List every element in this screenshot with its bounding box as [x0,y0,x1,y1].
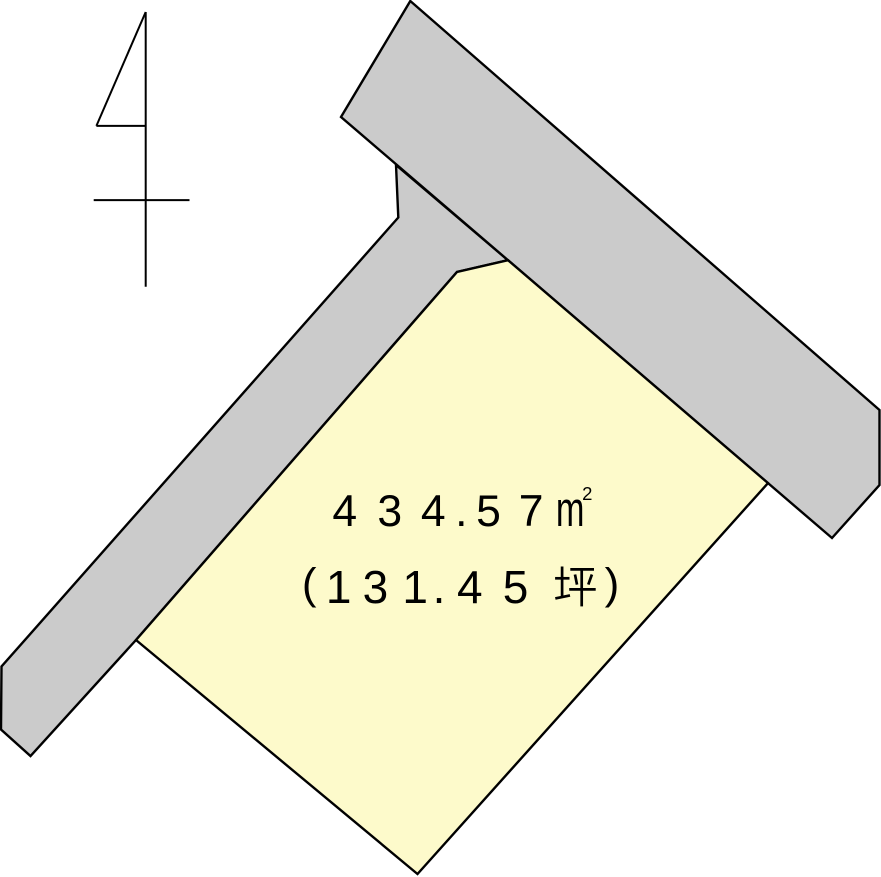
svg-text:.: . [433,561,446,613]
svg-text:4: 4 [457,561,483,613]
svg-text:4: 4 [421,487,446,536]
svg-text:4: 4 [332,487,357,536]
svg-text:1: 1 [402,561,428,613]
svg-text:2: 2 [582,483,592,504]
svg-text:3: 3 [363,561,389,613]
svg-text:5: 5 [476,487,501,536]
svg-text:3: 3 [377,487,402,536]
svg-text:(: ( [302,560,317,609]
svg-text:5: 5 [503,561,529,613]
svg-text:1: 1 [326,561,352,613]
svg-text:7: 7 [519,487,544,536]
svg-text:): ) [605,560,620,609]
svg-text:.: . [455,487,467,536]
svg-text:m: m [556,482,585,536]
